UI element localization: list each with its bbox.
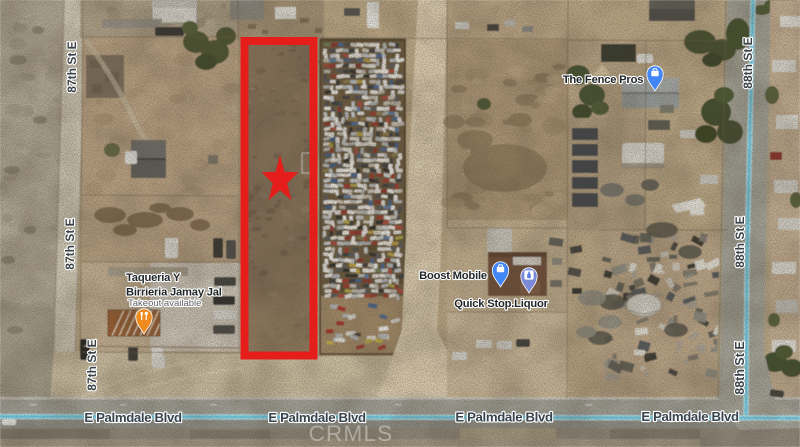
svg-text:E Palmdale Blvd: E Palmdale Blvd bbox=[84, 410, 182, 425]
svg-text:87th St E: 87th St E bbox=[65, 41, 79, 92]
svg-text:Boost Mobile: Boost Mobile bbox=[419, 270, 487, 282]
svg-text:88th St E: 88th St E bbox=[733, 341, 747, 395]
svg-text:87th St E: 87th St E bbox=[85, 339, 99, 390]
svg-text:88th St E: 88th St E bbox=[741, 37, 755, 88]
svg-text:88th St E: 88th St E bbox=[733, 216, 747, 267]
svg-text:CRMLS: CRMLS bbox=[309, 421, 394, 446]
svg-text:87th St E: 87th St E bbox=[63, 218, 77, 269]
svg-text:Takeout available: Takeout available bbox=[128, 298, 201, 309]
svg-text:Quick Stop.Liquor: Quick Stop.Liquor bbox=[454, 298, 548, 310]
svg-text:E Palmdale Blvd: E Palmdale Blvd bbox=[455, 410, 553, 425]
svg-text:The Fence Pros: The Fence Pros bbox=[563, 74, 644, 86]
svg-text:Taqueria Y: Taqueria Y bbox=[126, 272, 181, 284]
svg-text:E Palmdale Blvd: E Palmdale Blvd bbox=[641, 409, 739, 424]
svg-text:Birrieria Jamay Jal: Birrieria Jamay Jal bbox=[126, 287, 222, 299]
